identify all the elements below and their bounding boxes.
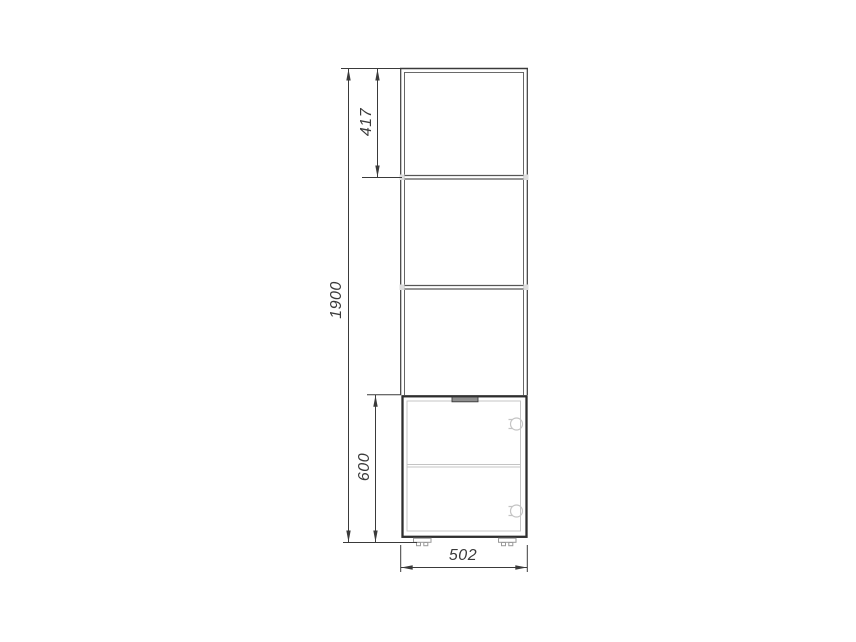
shelf-1-right-joint xyxy=(523,175,529,181)
foot-left-nub-1 xyxy=(417,543,421,546)
shelf-2 xyxy=(400,285,529,291)
arrow-up-417 xyxy=(375,69,379,81)
shelf-2-left-joint xyxy=(400,285,406,291)
door-handle xyxy=(452,397,478,402)
arrow-down-600 xyxy=(373,531,377,543)
dimension-shelf-spacing xyxy=(375,69,379,178)
shelf-2-right-joint xyxy=(523,285,529,291)
dimension-overall-height xyxy=(346,69,350,543)
dimension-overall-width xyxy=(401,565,528,569)
dimension-cabinet-height xyxy=(373,395,377,543)
foot-right-nub-1 xyxy=(502,543,506,546)
foot-left-nub-2 xyxy=(424,543,428,546)
foot-right-plate xyxy=(499,538,517,542)
foot-left-plate xyxy=(414,538,432,542)
foot-right xyxy=(499,538,517,545)
shelf-1 xyxy=(400,175,529,181)
arrow-right-502 xyxy=(515,565,527,569)
arrow-down-417 xyxy=(375,166,379,178)
technical-drawing: 1900 417 600 502 xyxy=(0,0,856,642)
upper-shelf-unit xyxy=(400,68,529,395)
dim-label-overall-width: 502 xyxy=(449,547,477,564)
foot-right-nub-2 xyxy=(509,543,513,546)
drawing-canvas: 1900 417 600 502 xyxy=(0,0,856,642)
base-cabinet xyxy=(403,396,527,545)
arrow-up-1900 xyxy=(346,69,350,81)
arrow-down-1900 xyxy=(346,531,350,543)
dim-label-overall-height: 1900 xyxy=(328,281,345,319)
arrow-up-600 xyxy=(373,395,377,407)
dim-label-cabinet-height: 600 xyxy=(356,453,373,481)
arrow-left-502 xyxy=(401,565,413,569)
dim-label-shelf-spacing: 417 xyxy=(358,107,375,136)
